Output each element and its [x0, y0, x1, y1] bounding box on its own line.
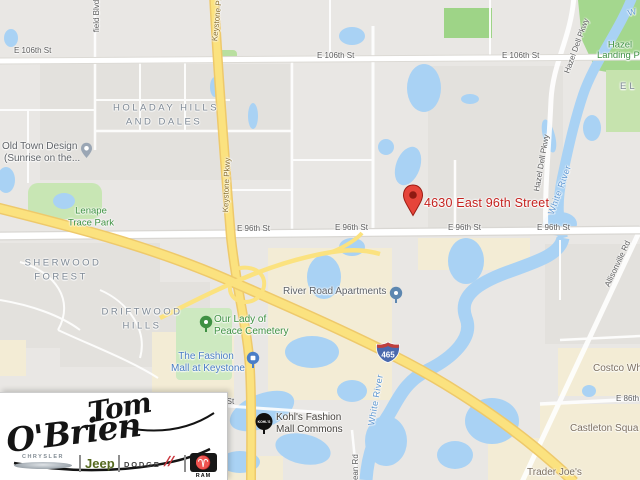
dealer-logo: Tom O'Brien CHRYSLER Jeep DODGE // ♈ RAM: [0, 392, 228, 480]
cemetery-pin-icon[interactable]: [199, 315, 213, 338]
river-road-apartments-pin-icon[interactable]: [389, 286, 403, 309]
street-label-e86th: E 86th S: [616, 395, 640, 403]
ram-wordmark: RAM: [190, 473, 217, 479]
poi-label-castleton-square: Castleton Squa: [570, 424, 638, 434]
fashion-mall-pin-icon[interactable]: [246, 351, 260, 374]
street-label-e96th-2: E 96th St: [335, 224, 368, 232]
street-label-e106th-2: E 106th St: [317, 52, 354, 60]
poi-label-old-town-line1: Old Town Design: [2, 142, 77, 152]
poi-label-old-town-line2: (Sunrise on the...: [4, 154, 80, 164]
poi-label-costco: Costco Wh: [593, 364, 640, 374]
neighborhood-label-fragment: EL: [620, 82, 638, 92]
street-label-e106th-3: E 106th St: [502, 52, 539, 60]
poi-label-river-road-apartments: River Road Apartments: [283, 287, 386, 297]
brand-row: CHRYSLER Jeep DODGE // ♈ RAM: [0, 453, 227, 480]
neighborhood-driftwood-line1: Driftwood: [101, 307, 182, 317]
street-label-e106th-1: E 106th St: [14, 47, 51, 55]
street-label-e96th-3: E 96th St: [448, 224, 481, 232]
poi-label-fashion-mall-line1: The Fashion: [178, 352, 234, 362]
poi-label-fashion-mall-line2: Mall at Keystone: [171, 364, 245, 374]
park-label-hazel-landing-line1: Hazel: [608, 40, 632, 50]
destination-marker-icon[interactable]: [402, 184, 424, 224]
street-label-dean-rd: Dean Rd: [352, 454, 360, 480]
street-label-e96th-4: E 96th St: [537, 224, 570, 232]
park-label-hazel-landing-line2: Landing Park: [597, 51, 640, 61]
interstate-465-shield-icon: 465: [375, 341, 401, 368]
destination-address-label: 4630 East 96th Street: [424, 197, 549, 210]
ram-head-icon: ♈: [190, 453, 217, 472]
poi-label-trader-joes: Trader Joe's: [527, 468, 582, 478]
street-label-e96th-1: E 96th St: [237, 225, 270, 233]
neighborhood-holaday-line1: Holaday Hills: [113, 103, 219, 113]
park-label-cemetery-line2: Peace Cemetery: [214, 327, 288, 337]
neighborhood-sherwood-line2: Forest: [34, 272, 88, 282]
map[interactable]: E 106th St E 106th St E 106th St E 96th …: [0, 0, 640, 480]
neighborhood-holaday-line2: and Dales: [126, 117, 202, 127]
chrysler-wing-icon: [14, 462, 72, 469]
dodge-slashes-icon: //: [163, 453, 174, 469]
street-label-field-blvd: field Blvd: [93, 0, 101, 32]
brand-divider: [79, 455, 81, 472]
poi-label-kohls-line2: Mall Commons: [276, 425, 343, 435]
jeep-wordmark: Jeep: [85, 456, 115, 471]
brand-divider: [118, 455, 120, 472]
park-label-lenape-line1: Lenape: [75, 206, 107, 216]
park-label-lenape-line2: Trace Park: [68, 218, 114, 228]
kohls-icon-text: KOHL'S: [258, 420, 271, 424]
old-town-pin-icon[interactable]: [80, 142, 93, 164]
poi-label-kohls-line1: Kohl's Fashion: [276, 413, 341, 423]
neighborhood-sherwood-line1: Sherwood: [25, 258, 102, 268]
brand-divider: [184, 455, 186, 472]
neighborhood-driftwood-line2: Hills: [123, 321, 162, 331]
chrysler-wordmark: CHRYSLER: [12, 454, 74, 460]
park-label-cemetery-line1: Our Lady of: [214, 315, 266, 325]
dodge-wordmark: DODGE: [124, 460, 161, 469]
kohls-store-icon[interactable]: KOHL'S: [254, 412, 274, 441]
interstate-465-number: 465: [381, 351, 395, 360]
